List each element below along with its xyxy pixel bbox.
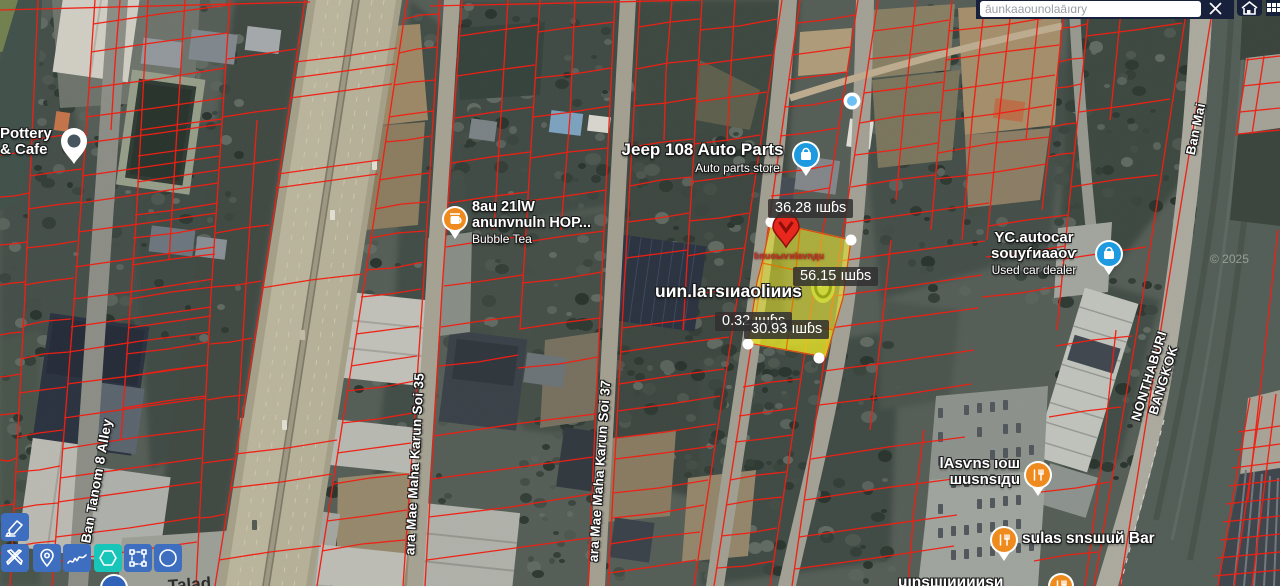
svg-text:© 2025: © 2025 — [1210, 252, 1249, 266]
